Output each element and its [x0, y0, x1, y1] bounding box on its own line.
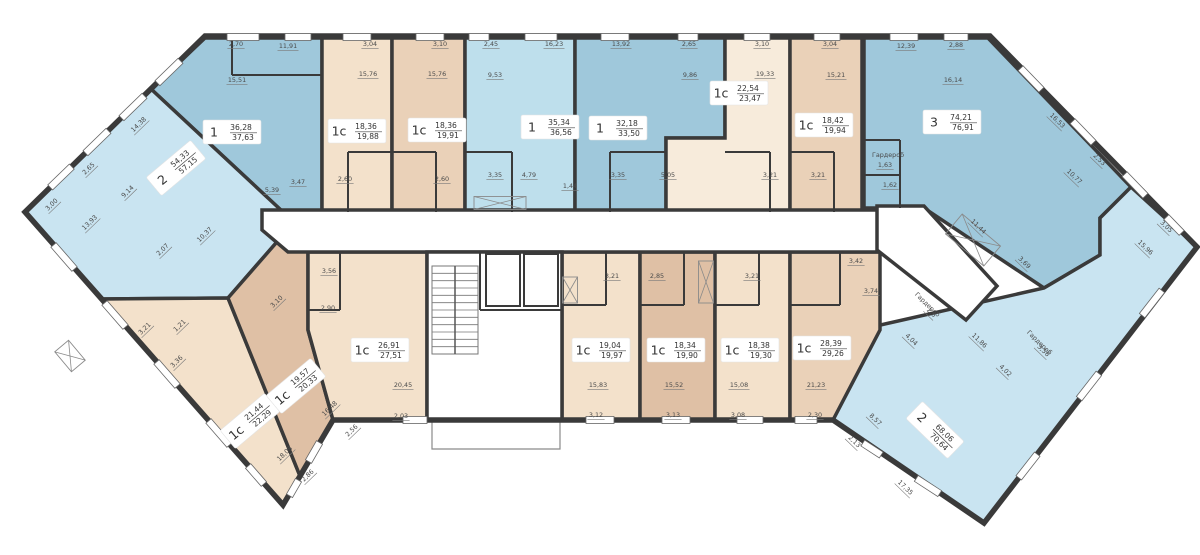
apartment-area-total: 19,94: [824, 126, 846, 135]
apartment-type: 1с: [725, 343, 740, 358]
window: [285, 34, 311, 41]
dimension-label: 20,45: [393, 381, 414, 390]
apartment-label-1s-18-38[interactable]: 1с18,3819,30: [721, 338, 779, 362]
apartment-area-total: 23,47: [739, 94, 761, 103]
apartment-area-living: 18,36: [435, 121, 457, 130]
apartment-area-total: 33,50: [618, 129, 640, 138]
dimension-label: 11,91: [278, 42, 299, 51]
dimension-label: 2,60: [433, 175, 450, 184]
dimension-label: 15,83: [588, 381, 609, 390]
dimension-label: 3,04: [361, 40, 378, 49]
dimension-label: 13,92: [611, 40, 632, 49]
apartment-type: 3: [930, 115, 938, 130]
apartment-label-1s-28-39[interactable]: 1с28,3929,26: [793, 336, 851, 360]
dimension-label: 1,63: [876, 161, 893, 170]
svg-text:3,35: 3,35: [611, 171, 625, 179]
apartment-1s-26-91[interactable]: [308, 252, 427, 420]
dimension-label: 3,74: [862, 287, 879, 296]
dimension-label: 1,44: [561, 182, 578, 191]
svg-text:3,42: 3,42: [849, 257, 863, 265]
svg-text:15,08: 15,08: [730, 381, 748, 389]
dimension-label: 12,39: [896, 42, 917, 51]
dimension-label: 3,47: [289, 178, 306, 187]
entrance-porch: [432, 420, 560, 449]
apartment-label-1s-19-04[interactable]: 1с19,0419,97: [572, 338, 630, 362]
svg-text:1,62: 1,62: [883, 181, 897, 189]
dimension-label: 1,62: [881, 181, 898, 190]
dimension-label: 17,35: [895, 477, 916, 498]
dimension-label: 15,08: [729, 381, 750, 390]
svg-text:15,21: 15,21: [827, 71, 845, 79]
apartment-area-living: 18,42: [822, 116, 844, 125]
svg-text:2,65: 2,65: [682, 40, 696, 48]
apartment-label-1-35-34[interactable]: 135,3436,56: [521, 115, 579, 139]
apartment-label-1-32-18[interactable]: 132,1833,50: [589, 116, 647, 140]
svg-text:2,56: 2,56: [344, 423, 360, 439]
dimension-label: 2,45: [482, 40, 499, 49]
dimension-label: 3,10: [431, 40, 448, 49]
apartment-type: 1с: [332, 124, 347, 139]
dimension-label: 16,23: [544, 40, 565, 49]
svg-text:13,92: 13,92: [612, 40, 630, 48]
dimension-label: 3,08: [729, 411, 746, 420]
apartment-area-total: 27,51: [380, 351, 402, 360]
svg-text:9,86: 9,86: [683, 71, 697, 79]
svg-text:1,63: 1,63: [878, 161, 892, 169]
dimension-label: 2,56: [343, 422, 361, 440]
apartment-area-total: 19,97: [601, 351, 623, 360]
svg-text:Гардероб: Гардероб: [872, 151, 904, 159]
dimension-label: 2,85: [648, 272, 665, 281]
apartment-type: 1с: [576, 343, 591, 358]
window: [944, 34, 968, 41]
apartment-label-1s-18-34[interactable]: 1с18,3419,90: [647, 338, 705, 362]
svg-text:3,10: 3,10: [433, 40, 447, 48]
apartment-type: 1с: [651, 343, 666, 358]
dimension-label: 3,42: [847, 257, 864, 266]
svg-text:15,52: 15,52: [665, 381, 683, 389]
svg-text:3,35: 3,35: [488, 171, 502, 179]
dimension-label: 2,88: [947, 41, 964, 50]
svg-text:21,23: 21,23: [807, 381, 825, 389]
svg-text:2,88: 2,88: [949, 41, 963, 49]
svg-text:4,79: 4,79: [522, 171, 536, 179]
dimension-label: 4,79: [520, 171, 537, 180]
svg-text:2,45: 2,45: [484, 40, 498, 48]
svg-text:2,85: 2,85: [650, 272, 664, 280]
svg-text:15,76: 15,76: [359, 70, 377, 78]
svg-text:3,04: 3,04: [363, 40, 377, 48]
svg-text:20,45: 20,45: [394, 381, 412, 389]
apartment-label-1s-18-36a[interactable]: 1с18,3619,88: [328, 119, 386, 143]
apartment-type: 1с: [714, 86, 729, 101]
dimension-label: 3,35: [609, 171, 626, 180]
svg-text:15,51: 15,51: [228, 76, 246, 84]
apartment-type: 1: [210, 125, 218, 140]
dimension-label: 15,21: [826, 71, 847, 80]
apartment-area-living: 18,38: [748, 341, 770, 350]
dimension-label: 2,70: [227, 40, 244, 49]
floor-plan-page: 2,7011,913,043,102,4516,2313,922,653,103…: [0, 0, 1200, 555]
svg-text:3,21: 3,21: [605, 272, 619, 280]
svg-text:2,90: 2,90: [321, 304, 335, 312]
svg-text:5,05: 5,05: [661, 171, 675, 179]
hatched-shaft: [55, 340, 86, 371]
apartment-label-1s-18-36b[interactable]: 1с18,3619,91: [408, 118, 466, 142]
svg-text:3,10: 3,10: [755, 40, 769, 48]
dimension-label: 15,52: [664, 381, 685, 390]
svg-text:2,03: 2,03: [394, 412, 408, 420]
apartment-area-living: 32,18: [616, 119, 638, 128]
dimension-label: 2,60: [336, 175, 353, 184]
svg-text:3,47: 3,47: [291, 178, 305, 186]
elevator-shaft: [486, 254, 520, 306]
apartment-label-1s-18-42[interactable]: 1с18,4219,94: [795, 113, 853, 137]
svg-text:3,21: 3,21: [811, 171, 825, 179]
dimension-label: 9,86: [681, 71, 698, 80]
svg-text:16,23: 16,23: [545, 40, 563, 48]
dimension-label: 21,23: [806, 381, 827, 390]
dimension-label: 5,05: [659, 171, 676, 180]
dimension-label: 15,51: [227, 76, 248, 85]
dimension-label: 19,33: [755, 70, 776, 79]
apartment-area-living: 18,36: [355, 122, 377, 131]
dimension-label: 2,30: [806, 411, 823, 420]
dimension-label: 3,04: [821, 40, 838, 49]
svg-text:15,76: 15,76: [428, 70, 446, 78]
corridor: [262, 210, 898, 252]
elevator-shaft: [524, 254, 558, 306]
svg-text:12,39: 12,39: [897, 42, 915, 50]
staircase: [432, 266, 478, 354]
apartment-type: 1с: [799, 118, 814, 133]
dimension-label: 3,21: [761, 171, 778, 180]
dimension-label: 16,14: [943, 76, 964, 85]
apartment-area-total: 29,26: [822, 349, 844, 358]
svg-text:5,39: 5,39: [265, 186, 279, 194]
dimension-label: 9,53: [486, 71, 503, 80]
dimension-label: 3,13: [664, 411, 681, 420]
svg-text:19,33: 19,33: [756, 70, 774, 78]
apartment-area-total: 36,56: [550, 128, 572, 137]
dimension-label: 2,03: [392, 412, 409, 421]
apartment-type: 1: [528, 120, 536, 135]
apartment-area-living: 36,28: [230, 123, 252, 132]
dimension-label: 3,56: [320, 267, 337, 276]
dimension-label: 3,21: [603, 272, 620, 281]
apartment-area-total: 19,30: [750, 351, 772, 360]
apartment-area-living: 28,39: [820, 339, 842, 348]
dimension-label: 2,65: [680, 40, 697, 49]
svg-text:2,60: 2,60: [435, 175, 449, 183]
svg-text:15,83: 15,83: [589, 381, 607, 389]
apartment-area-total: 37,63: [232, 133, 254, 142]
svg-text:11,91: 11,91: [279, 42, 297, 50]
window: [890, 34, 918, 41]
apartment-area-living: 18,34: [674, 341, 696, 350]
svg-text:2,30: 2,30: [808, 411, 822, 419]
apartment-area-total: 76,91: [952, 123, 974, 132]
svg-text:2,60: 2,60: [338, 175, 352, 183]
svg-text:3,12: 3,12: [589, 411, 603, 419]
dimension-label: 3,10: [753, 40, 770, 49]
dimension-label: 2,90: [319, 304, 336, 313]
apartment-label-1-36-28[interactable]: 136,2837,63: [203, 120, 261, 144]
dimension-label: 3,21: [743, 272, 760, 281]
apartment-area-total: 19,91: [437, 131, 459, 140]
floor-plan: 2,7011,913,043,102,4516,2313,922,653,103…: [0, 0, 1200, 555]
apartment-area-living: 22,54: [737, 84, 759, 93]
svg-text:1,44: 1,44: [563, 182, 577, 190]
dimension-label: 3,12: [587, 411, 604, 420]
svg-text:9,53: 9,53: [488, 71, 502, 79]
apartment-label-1s-26-91[interactable]: 1с26,9127,51: [351, 338, 409, 362]
dimension-label: Гардероб: [872, 151, 904, 159]
apartment-area-living: 35,34: [548, 118, 570, 127]
svg-text:3,13: 3,13: [666, 411, 680, 419]
apartment-area-total: 19,90: [676, 351, 698, 360]
svg-text:16,14: 16,14: [944, 76, 962, 84]
apartment-label-1s-22-54[interactable]: 1с22,5423,47: [710, 81, 768, 105]
dimension-label: 3,21: [809, 171, 826, 180]
dimension-label: 15,76: [427, 70, 448, 79]
svg-text:3,74: 3,74: [864, 287, 878, 295]
svg-text:3,08: 3,08: [731, 411, 745, 419]
apartment-area-living: 19,04: [599, 341, 621, 350]
dimension-label: 3,35: [486, 171, 503, 180]
apartment-type: 1с: [355, 343, 370, 358]
apartment-area-total: 19,88: [357, 132, 379, 141]
svg-text:3,56: 3,56: [322, 267, 336, 275]
apartment-type: 1с: [412, 123, 427, 138]
apartment-label-3-74-21[interactable]: 374,2176,91: [923, 110, 981, 134]
svg-text:3,04: 3,04: [823, 40, 837, 48]
apartment-type: 1: [596, 121, 604, 136]
dimension-label: 15,76: [358, 70, 379, 79]
svg-text:3,21: 3,21: [745, 272, 759, 280]
apartment-area-living: 74,21: [950, 113, 972, 122]
dimension-label: 5,39: [263, 186, 280, 195]
svg-text:2,70: 2,70: [229, 40, 243, 48]
svg-text:3,21: 3,21: [763, 171, 777, 179]
apartment-area-living: 26,91: [378, 341, 400, 350]
apartment-type: 1с: [797, 341, 812, 356]
